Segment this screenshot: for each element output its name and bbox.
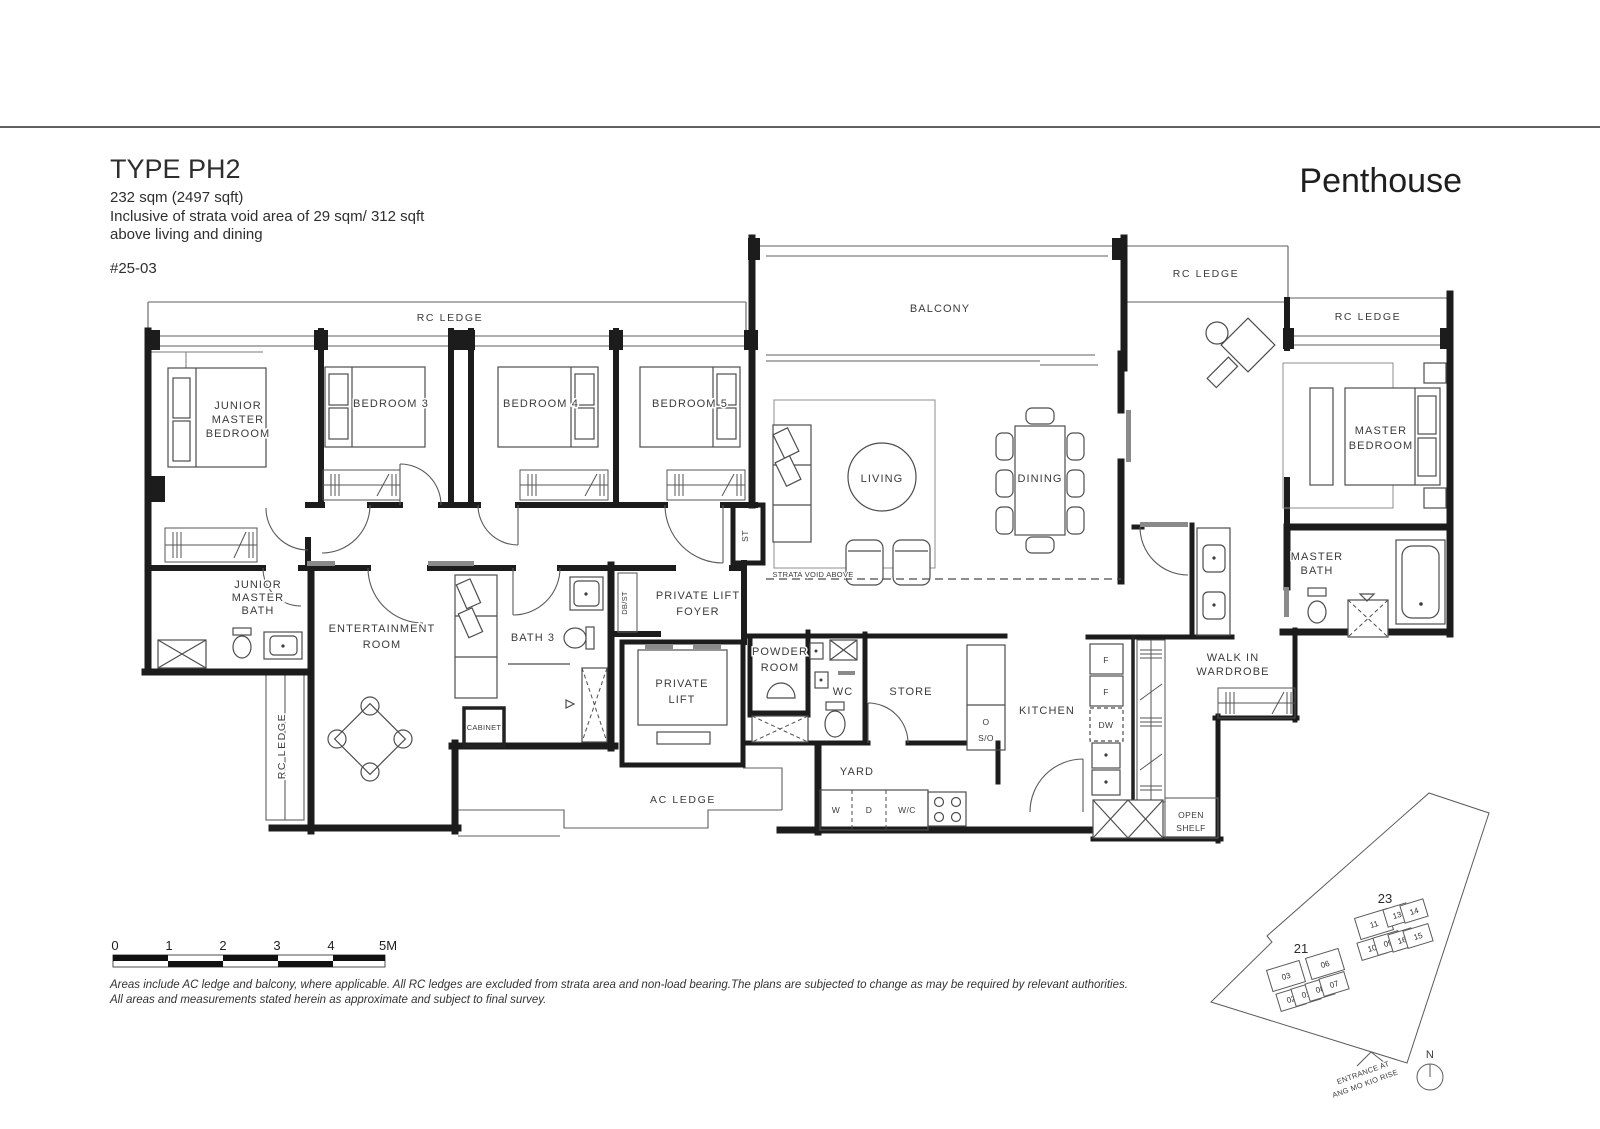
label-fridge-1: F [1103, 655, 1109, 665]
label-dishwasher: DW [1099, 720, 1114, 730]
terrace-furniture [1206, 318, 1275, 387]
room-label-open-shelf-2: SHELF [1176, 823, 1205, 833]
wardrobe-bedroom5 [667, 470, 745, 500]
room-label-powder-2: ROOM [761, 662, 800, 674]
room-label-bedroom4: BEDROOM 4 [503, 398, 579, 410]
room-label-lift-foyer-2: FOYER [676, 606, 719, 618]
room-label-bedroom3: BEDROOM 3 [353, 398, 429, 410]
room-label-walk-in-2: WARDROBE [1196, 666, 1269, 678]
room-label-lift-foyer-1: PRIVATE LIFT [656, 590, 740, 602]
area-text: 232 sqm (2497 sqft) [110, 189, 243, 206]
site-block-21: 21 [1294, 941, 1308, 956]
site-block-23: 23 [1378, 891, 1392, 906]
room-label-dining: DINING [1017, 473, 1062, 485]
room-label-open-shelf-1: OPEN [1178, 810, 1204, 820]
north-label: N [1426, 1049, 1434, 1061]
floorplan-canvas: TYPE PH2 232 sqm (2497 sqft) Inclusive o… [0, 0, 1600, 1129]
room-label-junior-master-2: MASTER [212, 414, 264, 426]
room-label-private-lift-2: LIFT [668, 694, 695, 706]
label-rc-ledge-top-left: RC LEDGE [417, 312, 483, 324]
bath3-fixtures [508, 577, 607, 742]
label-dryer: D [866, 805, 873, 815]
scale-seg-1 [113, 955, 168, 961]
disclaimer-line-1: Areas include AC ledge and balcony, wher… [109, 979, 1128, 991]
room-label-bath3: BATH 3 [511, 632, 555, 644]
entertainment-furniture [328, 575, 504, 781]
room-label-wc: WC [833, 686, 854, 698]
scale-bar: 0 1 2 3 4 5M [111, 938, 397, 967]
scale-tick-3: 3 [273, 938, 280, 953]
label-ac-ledge: AC LEDGE [650, 794, 716, 806]
junior-bath-fixtures [158, 628, 302, 668]
wardrobe-junior-master [165, 528, 257, 562]
room-label-living: LIVING [861, 473, 904, 485]
scale-tick-4: 4 [327, 938, 334, 953]
room-label-kitchen: KITCHEN [1019, 705, 1075, 717]
label-rc-ledge-master: RC LEDGE [1335, 311, 1401, 323]
disclaimer: Areas include AC ledge and balcony, wher… [109, 979, 1128, 1006]
room-label-walk-in-1: WALK IN [1207, 652, 1260, 664]
wc-fixtures [815, 671, 855, 737]
scale-tick-1: 1 [165, 938, 172, 953]
north-indicator: N [1417, 1049, 1443, 1090]
label-washer: W [832, 805, 840, 815]
room-label-private-lift-1: PRIVATE [655, 678, 708, 690]
room-label-entertainment-2: ROOM [363, 639, 402, 651]
room-label-junior-bath-1: JUNIOR [234, 579, 282, 591]
room-label-junior-master-1: JUNIOR [214, 400, 262, 412]
label-rc-ledge-left: RC LEDGE [276, 713, 288, 779]
scale-seg-5 [333, 955, 385, 961]
room-label-junior-bath-3: BATH [242, 605, 275, 617]
scale-tick-5: 5M [379, 938, 397, 953]
room-label-master-bedroom-2: BEDROOM [1349, 440, 1414, 452]
wardrobe-walk-in [1218, 688, 1295, 718]
room-label-powder-1: POWDER [752, 646, 808, 658]
scale-tick-0: 0 [111, 938, 118, 953]
label-cabinet: CABINET [467, 723, 502, 732]
scale-tick-2: 2 [219, 938, 226, 953]
plan-category: Penthouse [1299, 162, 1462, 200]
label-strata-void: STRATA VOID ABOVE [772, 570, 853, 579]
room-label-master-bedroom-1: MASTER [1355, 425, 1407, 437]
wardrobe-bedroom4 [520, 470, 608, 500]
label-oven: O [982, 717, 989, 727]
room-label-balcony: BALCONY [910, 303, 970, 315]
master-bath-fixtures [1197, 528, 1445, 637]
scale-seg-4 [278, 961, 333, 967]
label-rc-ledge-terrace: RC LEDGE [1173, 268, 1239, 280]
disclaimer-line-2: All areas and measurements stated herein… [109, 994, 546, 1006]
tall-cabinet-kitchen [1137, 640, 1165, 802]
site-boundary [1211, 793, 1489, 1063]
strata-note-2: above living and dining [110, 226, 263, 243]
header: TYPE PH2 232 sqm (2497 sqft) Inclusive o… [0, 127, 1600, 277]
room-label-yard: YARD [840, 766, 874, 778]
label-st: ST [740, 530, 750, 542]
wardrobe-bedroom3 [323, 470, 400, 500]
label-fridge-2: F [1103, 687, 1109, 697]
site-plan: 21 23 03 06 02 01 08 07 11 13 14 10 09 [1211, 793, 1489, 1100]
label-db-st: DB/ST [620, 591, 629, 615]
yard-appliances [820, 790, 966, 830]
room-label-bedroom5: BEDROOM 5 [652, 398, 728, 410]
label-steam-oven: S/O [978, 733, 994, 743]
strata-note-1: Inclusive of strata void area of 29 sqm/… [110, 208, 425, 225]
floorplan-page: TYPE PH2 232 sqm (2497 sqft) Inclusive o… [0, 0, 1600, 1129]
page-title: TYPE PH2 [110, 154, 241, 184]
room-label-junior-bath-2: MASTER [232, 592, 284, 604]
room-label-store: STORE [889, 686, 932, 698]
scale-seg-3 [223, 955, 278, 961]
label-wc-appliance: W/C [898, 805, 916, 815]
room-label-master-bath-1: MASTER [1291, 551, 1343, 563]
room-label-entertainment-1: ENTERTAINMENT [329, 623, 436, 635]
room-label-master-bath-2: BATH [1301, 565, 1334, 577]
room-label-junior-master-3: BEDROOM [206, 428, 271, 440]
scale-seg-2 [168, 961, 223, 967]
unit-number: #25-03 [110, 260, 157, 277]
living-furniture [773, 400, 935, 585]
site-entrance: ENTRANCE AT ANG MO KIO RISE [1331, 1052, 1399, 1100]
